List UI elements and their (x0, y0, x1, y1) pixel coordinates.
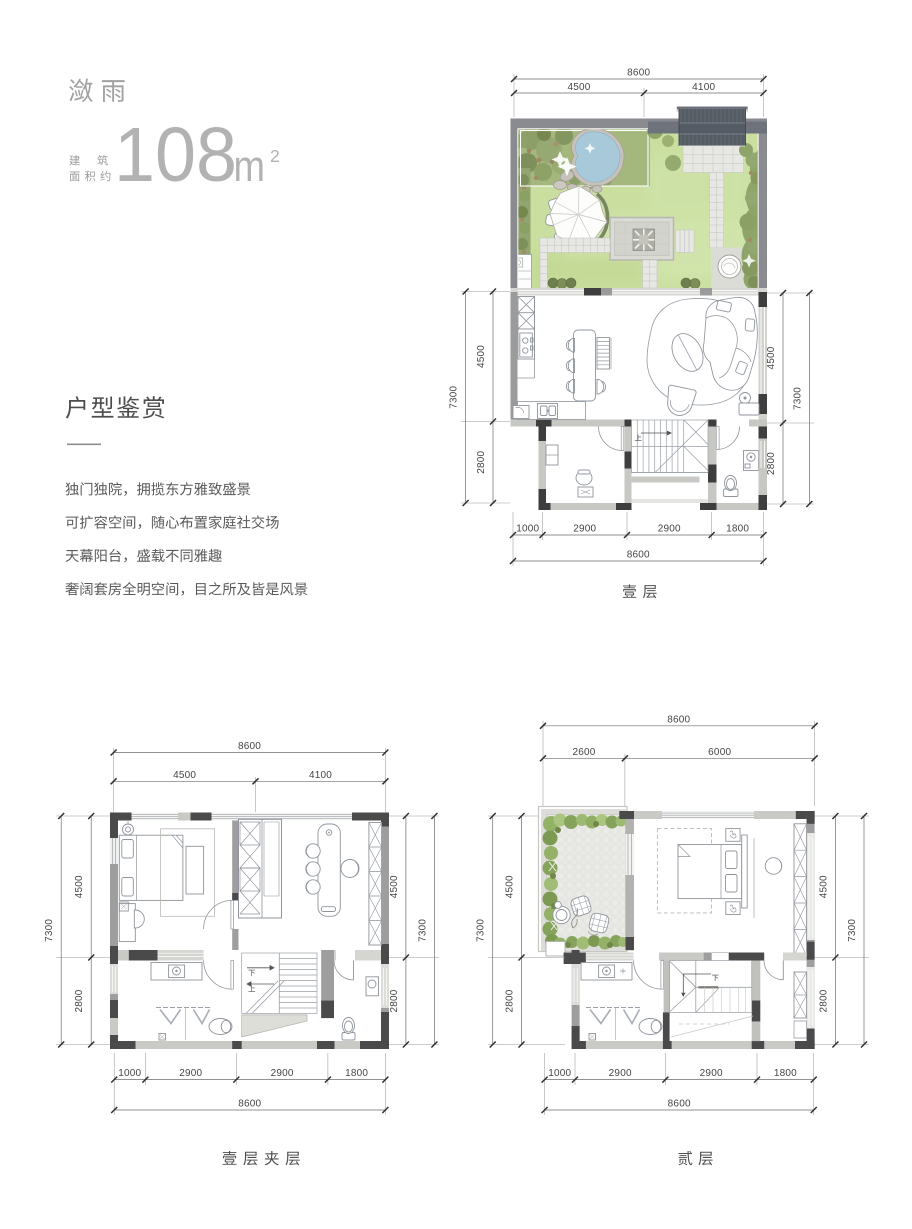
svg-text:2800: 2800 (476, 450, 487, 473)
svg-text:1000: 1000 (516, 524, 539, 535)
svg-text:4500: 4500 (505, 875, 516, 898)
svg-text:4100: 4100 (309, 770, 332, 781)
svg-text:2900: 2900 (179, 1068, 202, 1079)
svg-text:7300: 7300 (44, 919, 55, 942)
svg-text:7300: 7300 (417, 919, 428, 942)
svg-text:4500: 4500 (476, 345, 487, 368)
svg-text:108: 108 (114, 112, 237, 198)
svg-text:4500: 4500 (74, 875, 85, 898)
svg-text:4500: 4500 (766, 346, 777, 369)
svg-text:7300: 7300 (476, 919, 487, 942)
svg-text:8600: 8600 (627, 68, 650, 79)
svg-text:7300: 7300 (449, 385, 460, 408)
svg-text:1800: 1800 (345, 1068, 368, 1079)
svg-text:2800: 2800 (766, 452, 777, 475)
svg-text:2600: 2600 (572, 747, 595, 758)
svg-text:6000: 6000 (708, 747, 731, 758)
svg-text:2800: 2800 (74, 989, 85, 1012)
svg-text:1800: 1800 (774, 1068, 797, 1079)
svg-text:8600: 8600 (238, 741, 261, 752)
svg-text:4500: 4500 (389, 875, 400, 898)
svg-text:8600: 8600 (668, 1099, 691, 1110)
svg-text:8600: 8600 (238, 1099, 261, 1110)
svg-text:2900: 2900 (271, 1068, 294, 1079)
svg-text:m: m (234, 142, 266, 191)
svg-text:2900: 2900 (573, 524, 596, 535)
svg-text:1000: 1000 (548, 1068, 571, 1079)
svg-text:8600: 8600 (627, 550, 650, 561)
svg-text:2800: 2800 (818, 989, 829, 1012)
svg-text:8600: 8600 (667, 714, 690, 725)
svg-text:4100: 4100 (692, 82, 715, 93)
svg-text:7300: 7300 (792, 387, 803, 410)
svg-text:2800: 2800 (505, 989, 516, 1012)
svg-text:2: 2 (270, 146, 280, 166)
svg-text:4500: 4500 (567, 82, 590, 93)
svg-text:7300: 7300 (847, 919, 858, 942)
svg-text:2900: 2900 (700, 1068, 723, 1079)
svg-text:1000: 1000 (118, 1068, 141, 1079)
svg-text:2900: 2900 (658, 524, 681, 535)
svg-text:2800: 2800 (389, 989, 400, 1012)
svg-text:2900: 2900 (609, 1068, 632, 1079)
svg-text:4500: 4500 (173, 770, 196, 781)
svg-text:4500: 4500 (818, 875, 829, 898)
svg-text:1800: 1800 (726, 524, 749, 535)
